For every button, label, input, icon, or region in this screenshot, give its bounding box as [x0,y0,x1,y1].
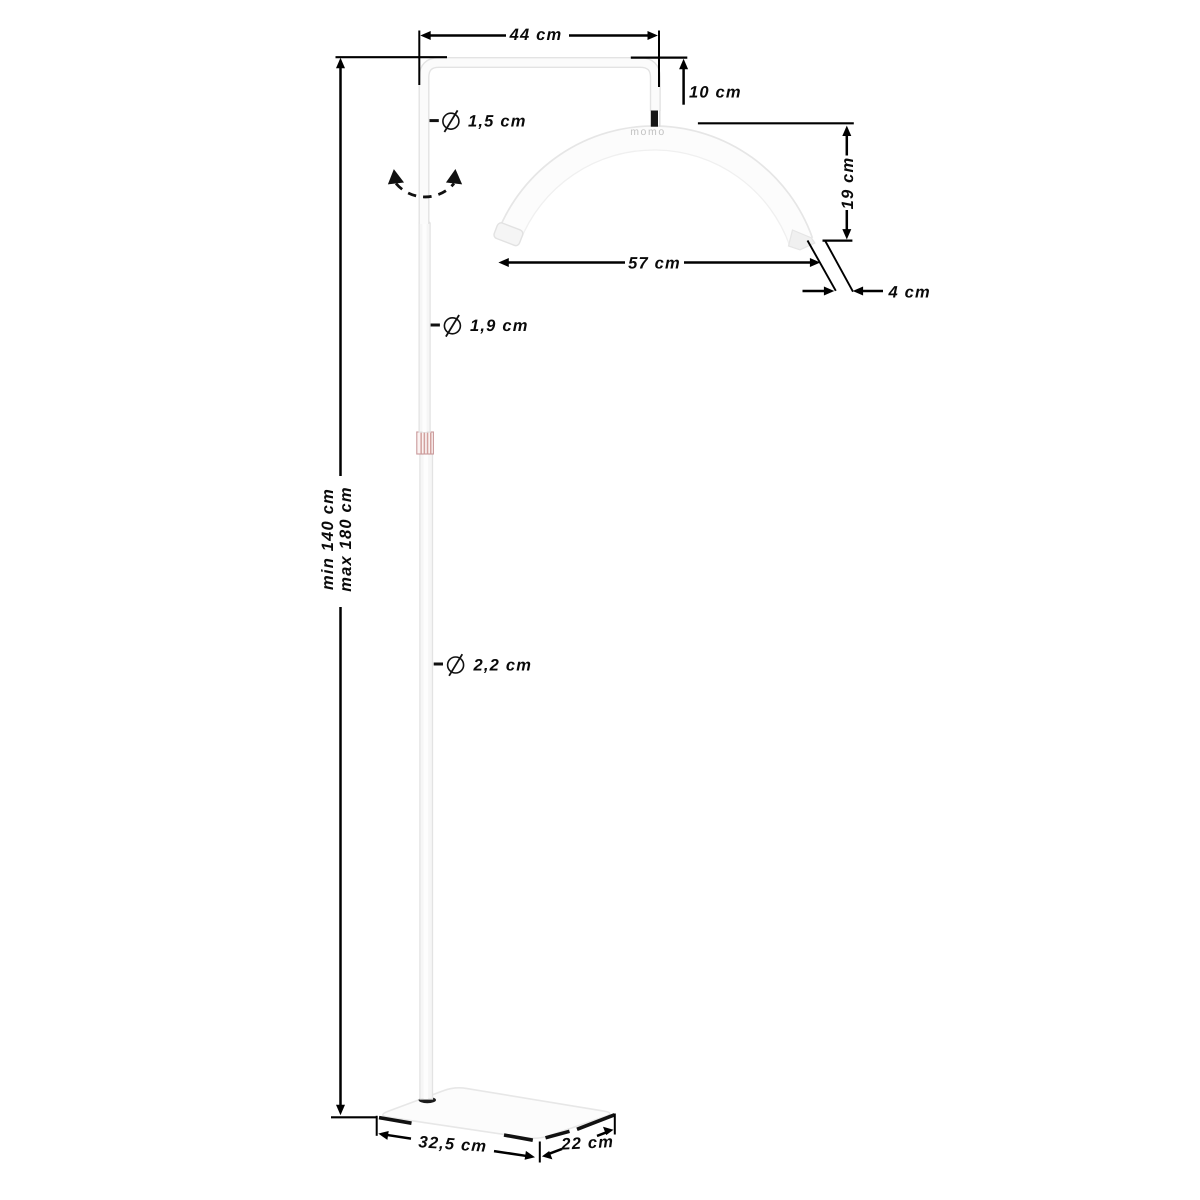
svg-text:momo: momo [630,126,666,138]
svg-text:2,2 cm: 2,2 cm [473,657,533,675]
svg-text:1,9 cm: 1,9 cm [470,317,529,335]
svg-text:4 cm: 4 cm [888,283,931,301]
svg-text:22 cm: 22 cm [560,1133,615,1154]
svg-text:1,5 cm: 1,5 cm [468,113,527,131]
svg-text:min 140 cmmax 180 cm: min 140 cmmax 180 cm [319,486,355,592]
svg-text:19 cm: 19 cm [839,157,857,210]
svg-text:10 cm: 10 cm [689,84,742,102]
svg-text:57 cm: 57 cm [628,254,681,272]
svg-text:44 cm: 44 cm [509,26,563,44]
